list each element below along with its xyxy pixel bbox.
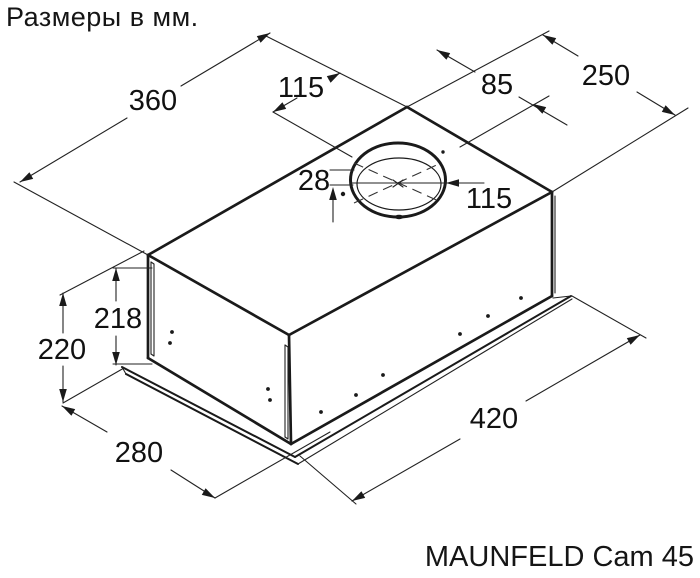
arrow [627,335,640,345]
arrow [202,488,215,498]
arrow [352,491,365,501]
arrow [257,33,270,43]
dim-420-label: 420 [470,403,518,435]
dim-duct-diameter: 115 [446,179,512,215]
dim-duct-hole-offset: 28 [298,165,354,222]
dim-top-face-depth: 250 [407,31,688,192]
dim-115-duct-label: 115 [466,183,512,215]
dim-bottom-panel-width: 420 [300,296,646,504]
dim-220-label: 220 [38,334,86,366]
arrow [446,179,459,187]
duct-collar [350,143,446,217]
dim-body-height: 218 [94,268,152,365]
drawing-page: Размеры в мм. [0,0,700,578]
hood-body-outline [148,107,552,444]
arrow [112,352,120,365]
arrow [543,35,556,45]
dim-85-label: 85 [481,69,513,101]
dim-28-label: 28 [298,165,330,197]
arrow [327,73,340,83]
bottom-liner-panel [122,296,572,464]
arrow [662,105,675,115]
dim-218-label: 218 [94,303,142,335]
dim-duct-offset-rear: 85 [437,50,567,147]
arrow [437,50,450,60]
dim-115-top-label: 115 [278,72,324,104]
arrow [112,268,120,281]
hood-dimension-drawing: 360 115 85 250 [0,0,700,578]
arrow [59,389,67,402]
dim-360-label: 360 [129,85,177,117]
arrow [20,172,33,182]
dim-280-label: 280 [115,437,163,469]
dim-250-label: 250 [582,60,630,92]
dim-top-face-width: 360 [14,33,407,255]
arrow [62,406,75,416]
model-label: MAUNFELD Cam 45 [425,541,694,574]
arrow [329,187,337,200]
